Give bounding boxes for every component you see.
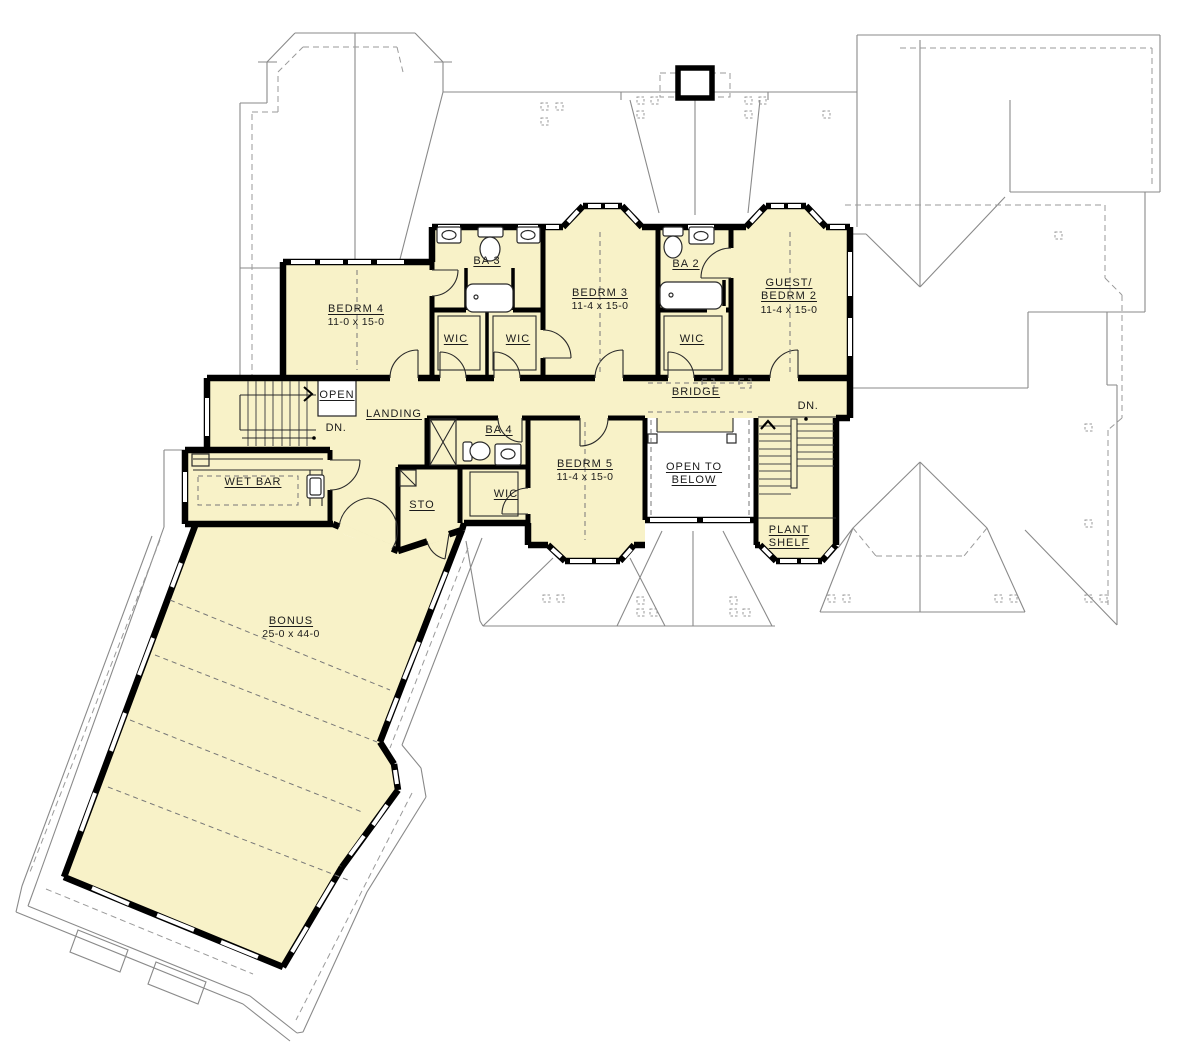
chimney [660,68,730,98]
bridge-notch [657,418,733,432]
label-open-to-below: OPEN TO BELOW [666,461,722,488]
room-label-wic-d: WIC [494,488,518,501]
ba3-sink-icon [437,227,461,243]
room-label-bedrm3: BEDRM 3 11-4 x 15-0 [572,287,629,313]
room-label-wet-bar: WET BAR [225,476,282,489]
roof-dormer-boxes [70,930,206,1004]
ba3-sink2-icon [517,227,540,243]
room-label-sto: STO [409,499,434,512]
label-plant-shelf: PLANT SHELF [769,524,809,551]
room-label-wic-c: WIC [680,333,704,346]
label-bridge: BRIDGE [672,386,720,399]
ba2-sink-icon [689,227,714,244]
room-label-ba2: BA 2 [672,258,699,271]
floor-plan-canvas: BEDRM 4 11-0 x 15-0 BA 3 WIC WIC BEDRM 3… [0,0,1200,1043]
label-landing: LANDING [366,408,422,421]
ba4-sink-icon [495,444,521,465]
room-label-ba3: BA 3 [473,255,500,268]
ba4-toilet-icon [463,442,490,461]
room-label-wic-b: WIC [506,333,530,346]
bridge-post [648,434,657,443]
room-label-ba4: BA 4 [485,424,512,437]
label-open: OPEN [319,389,354,402]
room-label-bedrm4: BEDRM 4 11-0 x 15-0 [328,303,385,329]
room-label-bedrm5: BEDRM 5 11-4 x 15-0 [557,458,614,484]
room-label-bonus: BONUS 25-0 x 44-0 [262,615,320,641]
ba2-toilet-icon [663,227,683,258]
room-label-wic-a: WIC [444,333,468,346]
ba3-tub-icon [466,284,513,312]
floor-plan-drawing [0,0,1200,1043]
ba2-tub-icon [660,282,722,309]
label-dn-left: DN. [326,422,347,435]
bridge-post [727,434,736,443]
room-label-guest-bedrm2: GUEST/ BEDRM 2 11-4 x 15-0 [761,277,818,317]
label-dn-right: DN. [798,400,819,413]
